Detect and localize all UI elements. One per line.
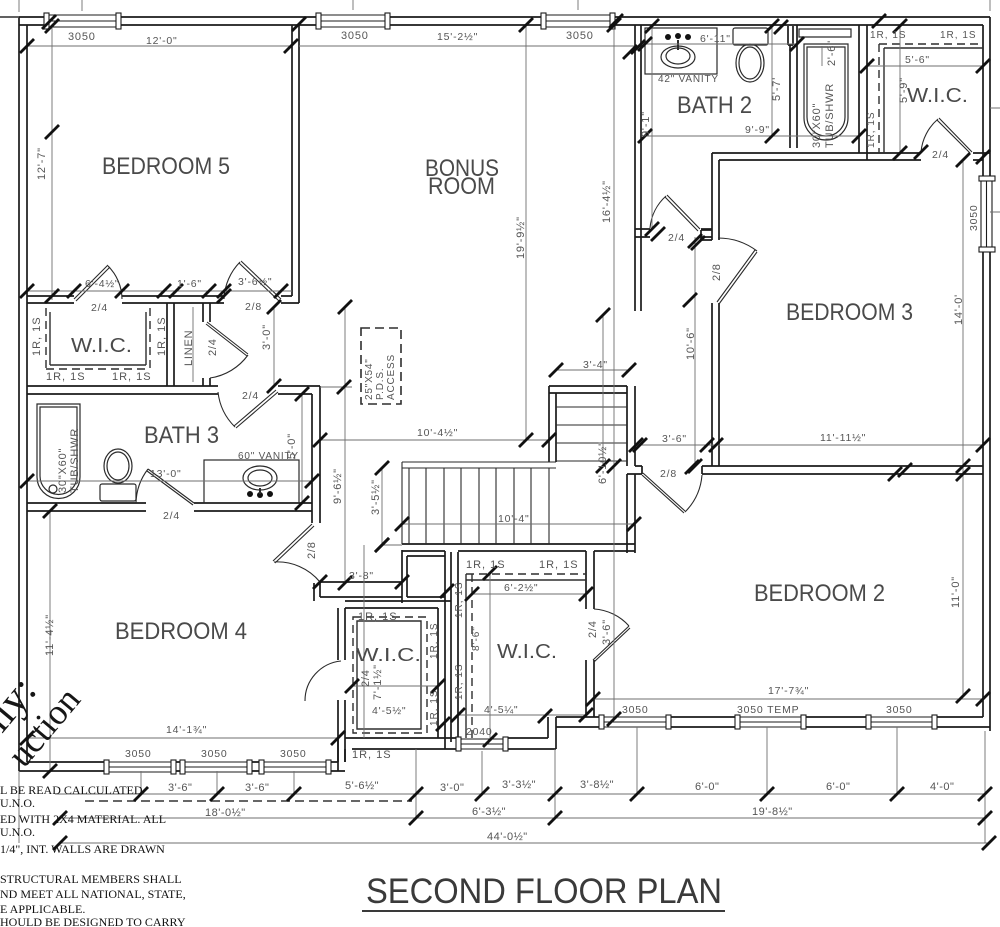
svg-text:1R, 1S: 1R, 1S [466,559,506,571]
svg-text:16'-4½": 16'-4½" [601,180,613,223]
svg-text:2/4: 2/4 [242,390,259,402]
svg-text:ROOM: ROOM [428,173,495,200]
svg-text:L BE READ CALCULATED: L BE READ CALCULATED [0,783,143,797]
svg-text:2/4: 2/4 [587,620,599,638]
svg-text:1R, 1S: 1R, 1S [454,663,465,700]
svg-text:1/4", INT. WALLS ARE DRAWN: 1/4", INT. WALLS ARE DRAWN [0,842,165,856]
svg-text:6'-0": 6'-0" [695,781,719,793]
svg-text:9'-1": 9'-1" [640,111,652,137]
svg-text:2/8: 2/8 [660,468,677,480]
svg-text:1R, 1S: 1R, 1S [866,111,877,148]
svg-text:BATH 2: BATH 2 [677,92,752,119]
svg-text:2/4: 2/4 [668,232,685,244]
svg-text:W.I.C.: W.I.C. [497,641,557,663]
svg-text:30"X60": 30"X60" [57,448,69,493]
svg-text:TUB/SHWR: TUB/SHWR [824,83,836,148]
svg-text:5'-6½": 5'-6½" [345,780,379,792]
svg-text:3'-6": 3'-6" [601,619,613,645]
svg-text:SECOND FLOOR PLAN: SECOND FLOOR PLAN [366,872,722,911]
svg-text:2/8: 2/8 [711,263,723,281]
svg-text:ACCESS: ACCESS [386,354,397,400]
svg-text:8'-6": 8'-6" [471,626,482,651]
svg-text:6'-4½": 6'-4½" [85,278,119,290]
svg-text:3050: 3050 [68,31,96,43]
svg-text:BEDROOM 2: BEDROOM 2 [754,580,885,607]
svg-text:6'-2½": 6'-2½" [504,582,538,594]
svg-text:2/8: 2/8 [245,301,262,313]
svg-text:10'-6": 10'-6" [685,327,697,360]
svg-text:4'-0": 4'-0" [930,781,954,793]
svg-text:3'-5½": 3'-5½" [370,479,382,515]
svg-text:3'-8½": 3'-8½" [580,779,614,791]
svg-text:3050: 3050 [341,30,369,42]
svg-text:13'-0": 13'-0" [150,468,182,480]
svg-text:3'-6": 3'-6" [662,433,687,445]
svg-text:9'-6½": 9'-6½" [332,468,344,504]
svg-text:BEDROOM 4: BEDROOM 4 [115,618,247,645]
svg-text:3'-6": 3'-6" [245,782,269,794]
svg-text:2/4: 2/4 [360,669,372,687]
svg-text:17'-7¾": 17'-7¾" [768,685,809,697]
svg-text:1R, 1S: 1R, 1S [429,622,440,659]
svg-text:BEDROOM 5: BEDROOM 5 [102,153,230,180]
svg-text:2/4: 2/4 [91,302,108,314]
svg-text:6'-0": 6'-0" [826,781,850,793]
svg-text:3'-0": 3'-0" [440,782,464,794]
svg-text:STRUCTURAL MEMBERS SHALL: STRUCTURAL MEMBERS SHALL [0,872,182,886]
svg-text:3050: 3050 [280,748,307,760]
svg-text:3050: 3050 [968,204,980,231]
svg-text:E APPLICABLE.: E APPLICABLE. [0,902,85,916]
svg-text:15'-2½": 15'-2½" [437,31,478,43]
svg-text:44'-0½": 44'-0½" [487,831,528,843]
svg-text:42" VANITY: 42" VANITY [658,74,719,85]
svg-text:W.I.C.: W.I.C. [71,335,132,357]
svg-text:3'-8": 3'-8" [349,570,374,582]
svg-text:11'-4½": 11'-4½" [44,614,56,656]
svg-text:14'-1¾": 14'-1¾" [166,724,207,736]
svg-text:11'-11½": 11'-11½" [820,432,866,444]
svg-text:3050: 3050 [566,30,594,42]
svg-text:1'-6": 1'-6" [177,278,202,290]
svg-text:3'-6": 3'-6" [168,782,192,794]
svg-text:3050: 3050 [886,704,913,716]
svg-text:3'-3½": 3'-3½" [502,779,536,791]
svg-text:19'-8½": 19'-8½" [752,806,793,818]
svg-text:3'-0": 3'-0" [261,324,273,350]
svg-text:ED WITH 2X4 MATERIAL. ALL: ED WITH 2X4 MATERIAL. ALL [0,812,166,826]
svg-text:11'-0": 11'-0" [950,576,962,608]
svg-text:1R, 1S: 1R, 1S [429,689,440,726]
svg-text:9'-9": 9'-9" [745,124,770,136]
svg-text:10'-4": 10'-4" [498,513,530,525]
svg-text:4'-5¼": 4'-5¼" [484,704,518,716]
svg-text:6'-3½": 6'-3½" [472,806,506,818]
svg-text:1R, 1S: 1R, 1S [870,30,907,41]
svg-text:12'-7": 12'-7" [36,147,48,180]
svg-text:1R, 1S: 1R, 1S [112,371,152,383]
svg-text:5'-9": 5'-9" [898,77,910,103]
svg-text:3050: 3050 [201,748,228,760]
svg-text:5'-0": 5'-0" [286,433,298,459]
svg-text:U.N.O.: U.N.O. [0,825,35,839]
svg-text:3050: 3050 [622,704,649,716]
svg-text:25"X54": 25"X54" [364,358,375,400]
svg-text:5'-6": 5'-6" [905,54,930,66]
svg-text:2/8: 2/8 [306,541,318,559]
svg-text:2040: 2040 [466,726,493,738]
svg-text:3050: 3050 [125,748,152,760]
svg-text:6'-11": 6'-11" [700,33,731,45]
svg-text:1R, 1S: 1R, 1S [352,749,392,761]
svg-text:1R, 1S: 1R, 1S [156,316,168,356]
svg-text:30"X60": 30"X60" [811,103,823,148]
svg-text:2/4: 2/4 [163,510,180,522]
svg-text:2/4: 2/4 [207,338,219,356]
svg-text:ND MEET ALL NATIONAL, STATE,: ND MEET ALL NATIONAL, STATE, [0,887,186,901]
svg-text:5'-7': 5'-7' [771,77,783,101]
svg-text:7'-1½": 7'-1½" [372,664,384,700]
svg-text:6'-10½": 6'-10½" [597,441,609,484]
svg-text:19'-9½": 19'-9½" [515,216,527,259]
svg-text:U.N.O.: U.N.O. [0,796,35,810]
svg-text:1R, 1S: 1R, 1S [454,581,465,618]
svg-text:LINEN: LINEN [183,330,195,366]
svg-text:W.I.C.: W.I.C. [356,645,421,665]
svg-text:1R, 1S: 1R, 1S [46,371,86,383]
svg-text:3050 TEMP: 3050 TEMP [737,704,799,716]
svg-text:12'-0": 12'-0" [146,35,178,47]
svg-text:1R, 1S: 1R, 1S [940,30,977,41]
svg-text:10'-4½": 10'-4½" [417,427,458,439]
svg-text:P.D.S.: P.D.S. [375,368,386,400]
svg-text:14'-0': 14'-0' [953,294,965,325]
svg-text:3'-6½": 3'-6½" [238,276,272,288]
svg-text:1R, 1S: 1R, 1S [539,559,579,571]
svg-text:3'-4": 3'-4" [583,359,608,371]
svg-text:BATH 3: BATH 3 [144,422,219,449]
svg-text:4'-5½": 4'-5½" [372,705,406,717]
svg-text:1R, 1S: 1R, 1S [358,611,398,623]
svg-text:HOULD BE DESIGNED TO CARRY: HOULD BE DESIGNED TO CARRY [0,915,186,927]
svg-text:2'-6": 2'-6" [826,40,838,66]
svg-text:2/4: 2/4 [932,149,949,161]
svg-text:W.I.C.: W.I.C. [907,85,968,107]
svg-text:18'-0½": 18'-0½" [205,807,246,819]
svg-text:1R, 1S: 1R, 1S [31,316,43,356]
svg-text:BEDROOM 3: BEDROOM 3 [786,299,913,326]
svg-text:TUB/SHWR: TUB/SHWR [69,428,81,493]
